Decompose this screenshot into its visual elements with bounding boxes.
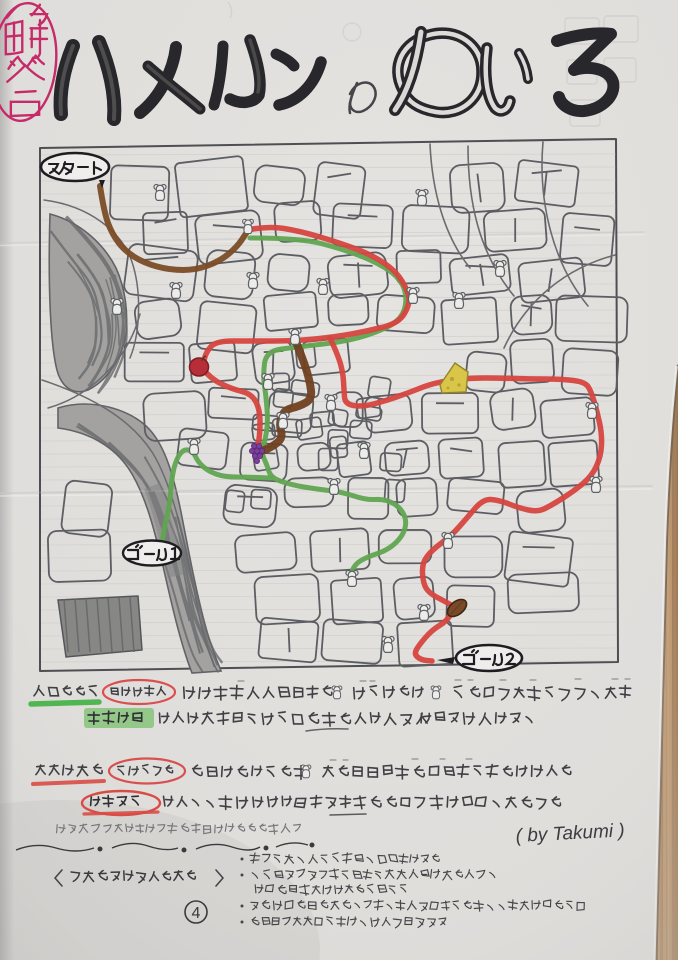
- svg-text:4: 4: [192, 905, 201, 922]
